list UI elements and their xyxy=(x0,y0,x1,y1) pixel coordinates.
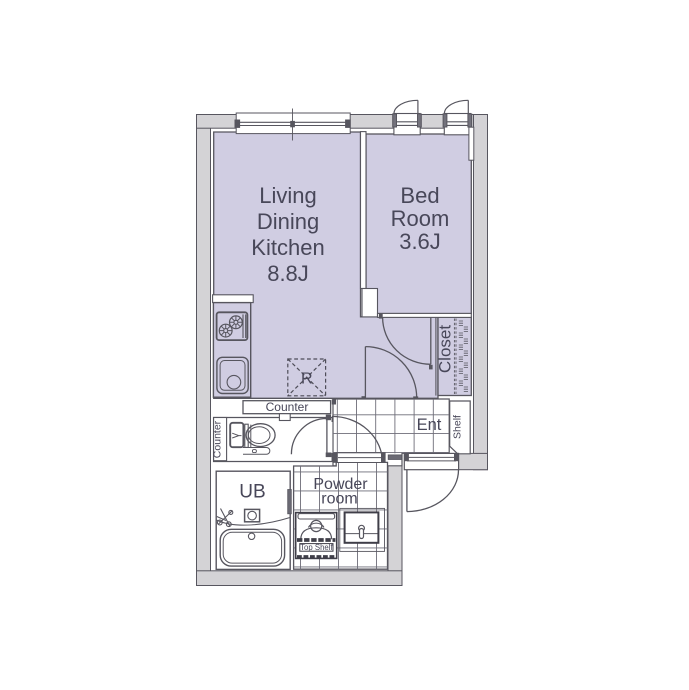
svg-text:Kitchen: Kitchen xyxy=(251,235,324,260)
svg-text:room: room xyxy=(321,491,357,508)
svg-text:Counter: Counter xyxy=(211,420,223,458)
svg-text:Top Shelf: Top Shelf xyxy=(300,543,333,552)
svg-text:3.6J: 3.6J xyxy=(399,229,441,254)
svg-text:Ent: Ent xyxy=(417,416,442,434)
svg-text:Counter: Counter xyxy=(266,400,309,414)
svg-text:8.8J: 8.8J xyxy=(267,261,309,286)
svg-text:Living: Living xyxy=(259,183,316,208)
svg-text:Shelf: Shelf xyxy=(451,415,463,439)
svg-text:R: R xyxy=(301,371,313,388)
svg-text:Room: Room xyxy=(391,206,450,231)
svg-text:Closet: Closet xyxy=(436,325,455,373)
svg-text:Bed: Bed xyxy=(400,183,439,208)
svg-text:UB: UB xyxy=(239,482,265,503)
svg-text:Dining: Dining xyxy=(257,209,319,234)
